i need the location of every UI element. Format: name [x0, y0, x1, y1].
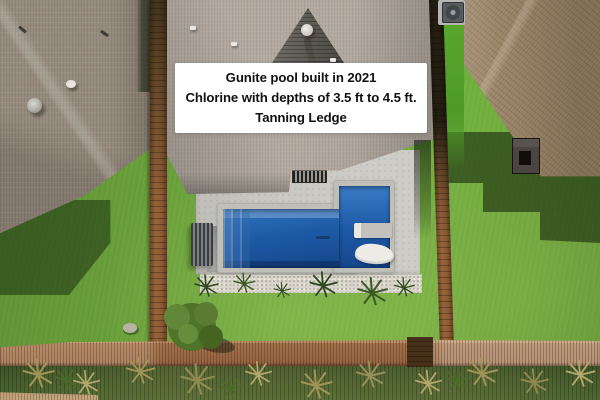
caption-overlay: Gunite pool built in 2021 Chlorine with …	[175, 63, 427, 133]
patio-vent-grill	[292, 170, 327, 183]
chimney	[512, 138, 540, 174]
caption-line-1: Gunite pool built in 2021	[226, 68, 377, 88]
poolside-bench	[191, 223, 213, 266]
aerial-photo: Gunite pool built in 2021 Chlorine with …	[0, 0, 600, 400]
caption-line-3: Tanning Ledge	[255, 108, 347, 128]
hedge-shadow-strip	[136, 0, 151, 92]
roof-vent	[66, 80, 76, 88]
roof-pipe-vent	[27, 98, 42, 113]
pool-drain	[316, 236, 330, 239]
roof-vent-dome-icon	[301, 24, 313, 36]
gravel-border	[200, 274, 422, 293]
ac-unit-icon	[442, 2, 464, 23]
roof-vent	[231, 42, 237, 46]
privacy-fence-left	[150, 0, 167, 363]
spa-bench-platform	[354, 223, 392, 238]
roof-vent	[190, 26, 196, 30]
pool-steps	[223, 209, 250, 268]
fence-shadow-strip	[414, 140, 431, 240]
back-fence-rail	[0, 340, 600, 366]
fence-post	[407, 337, 433, 367]
caption-line-2: Chlorine with depths of 3.5 ft to 4.5 ft…	[185, 88, 416, 108]
roof-vent	[330, 58, 336, 62]
